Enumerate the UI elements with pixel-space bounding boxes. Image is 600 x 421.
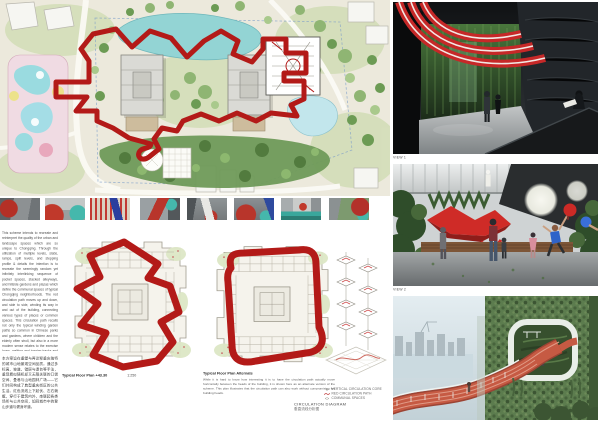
chinese-paragraph: 本方案旨在重塑与再诠释重庆独特的城市山地景观空间品质。通过多标高、坡道、错层与退… <box>2 356 58 414</box>
floor-plan-1 <box>60 232 200 372</box>
site-keyplan-box <box>266 37 320 95</box>
plan2-note: While it is hard to know how interesting… <box>203 378 335 402</box>
axon-ground-plane <box>326 347 386 374</box>
diagram-subtitle: 垂直流线分析图 <box>294 407 384 412</box>
concept-thumbnail-3 <box>90 198 130 220</box>
concept-thumbnail-1 <box>0 198 40 220</box>
concept-thumbnail-4 <box>140 198 180 220</box>
plan2-caption-row: Typical Floor Plan Alternate <box>203 371 335 378</box>
legend-row-1: VERTICAL CIRCULATION CORE <box>324 387 390 392</box>
concept-thumbnail-8 <box>329 198 369 220</box>
glow-orb-large <box>524 183 558 217</box>
plan1-scale: 1:250 <box>127 373 136 378</box>
red-balloon <box>564 204 577 217</box>
legend-core-icon <box>324 388 330 391</box>
plan2-caption: Typical Floor Plan Alternate <box>203 371 335 376</box>
render-skytrack <box>393 296 598 420</box>
concept-thumbnail-2 <box>45 198 85 220</box>
presentation-board: This scheme intends to recreate and rein… <box>0 0 600 421</box>
glow-orb-small <box>566 180 588 202</box>
floor-plan-2 <box>202 237 342 372</box>
plan1-caption: Typical Floor Plan +43.30 <box>62 373 107 378</box>
site-plan <box>0 0 390 196</box>
legend-row-3: COMMUNAL SPACES <box>324 396 390 401</box>
chinese-paragraph-text: 本方案旨在重塑与再诠释重庆独特的城市山地景观空间品质。通过多标高、坡道、错层与退… <box>2 356 58 410</box>
intro-paragraph: This scheme intends to recreate and rein… <box>2 231 58 351</box>
plan1-caption-row: Typical Floor Plan +43.30 1:250 <box>62 373 198 381</box>
intro-paragraph-text: This scheme intends to recreate and rein… <box>2 231 58 351</box>
plan2-note-text: While it is hard to know how interesting… <box>203 378 335 396</box>
site-pool-park <box>8 55 68 173</box>
view2-caption: VIEW 2 <box>393 288 453 294</box>
balcony-figure <box>486 170 491 187</box>
legend-path-icon <box>324 392 330 395</box>
view1-caption: VIEW 1 <box>393 156 453 162</box>
render-playground <box>393 164 598 286</box>
axon-floor-plates <box>337 256 377 338</box>
render-lobby <box>393 2 598 154</box>
diagram-title-block: CIRCULATION DIAGRAM 垂直流线分析图 <box>294 402 384 418</box>
circulation-axon-diagram <box>322 248 390 386</box>
concept-thumbnail-5 <box>187 198 227 220</box>
axon-legend: VERTICAL CIRCULATION CORE RED CIRCULATIO… <box>324 387 390 402</box>
concept-thumbnail-6 <box>234 198 274 220</box>
concept-thumbnail-7 <box>281 198 321 220</box>
legend-space-icon <box>324 397 330 400</box>
